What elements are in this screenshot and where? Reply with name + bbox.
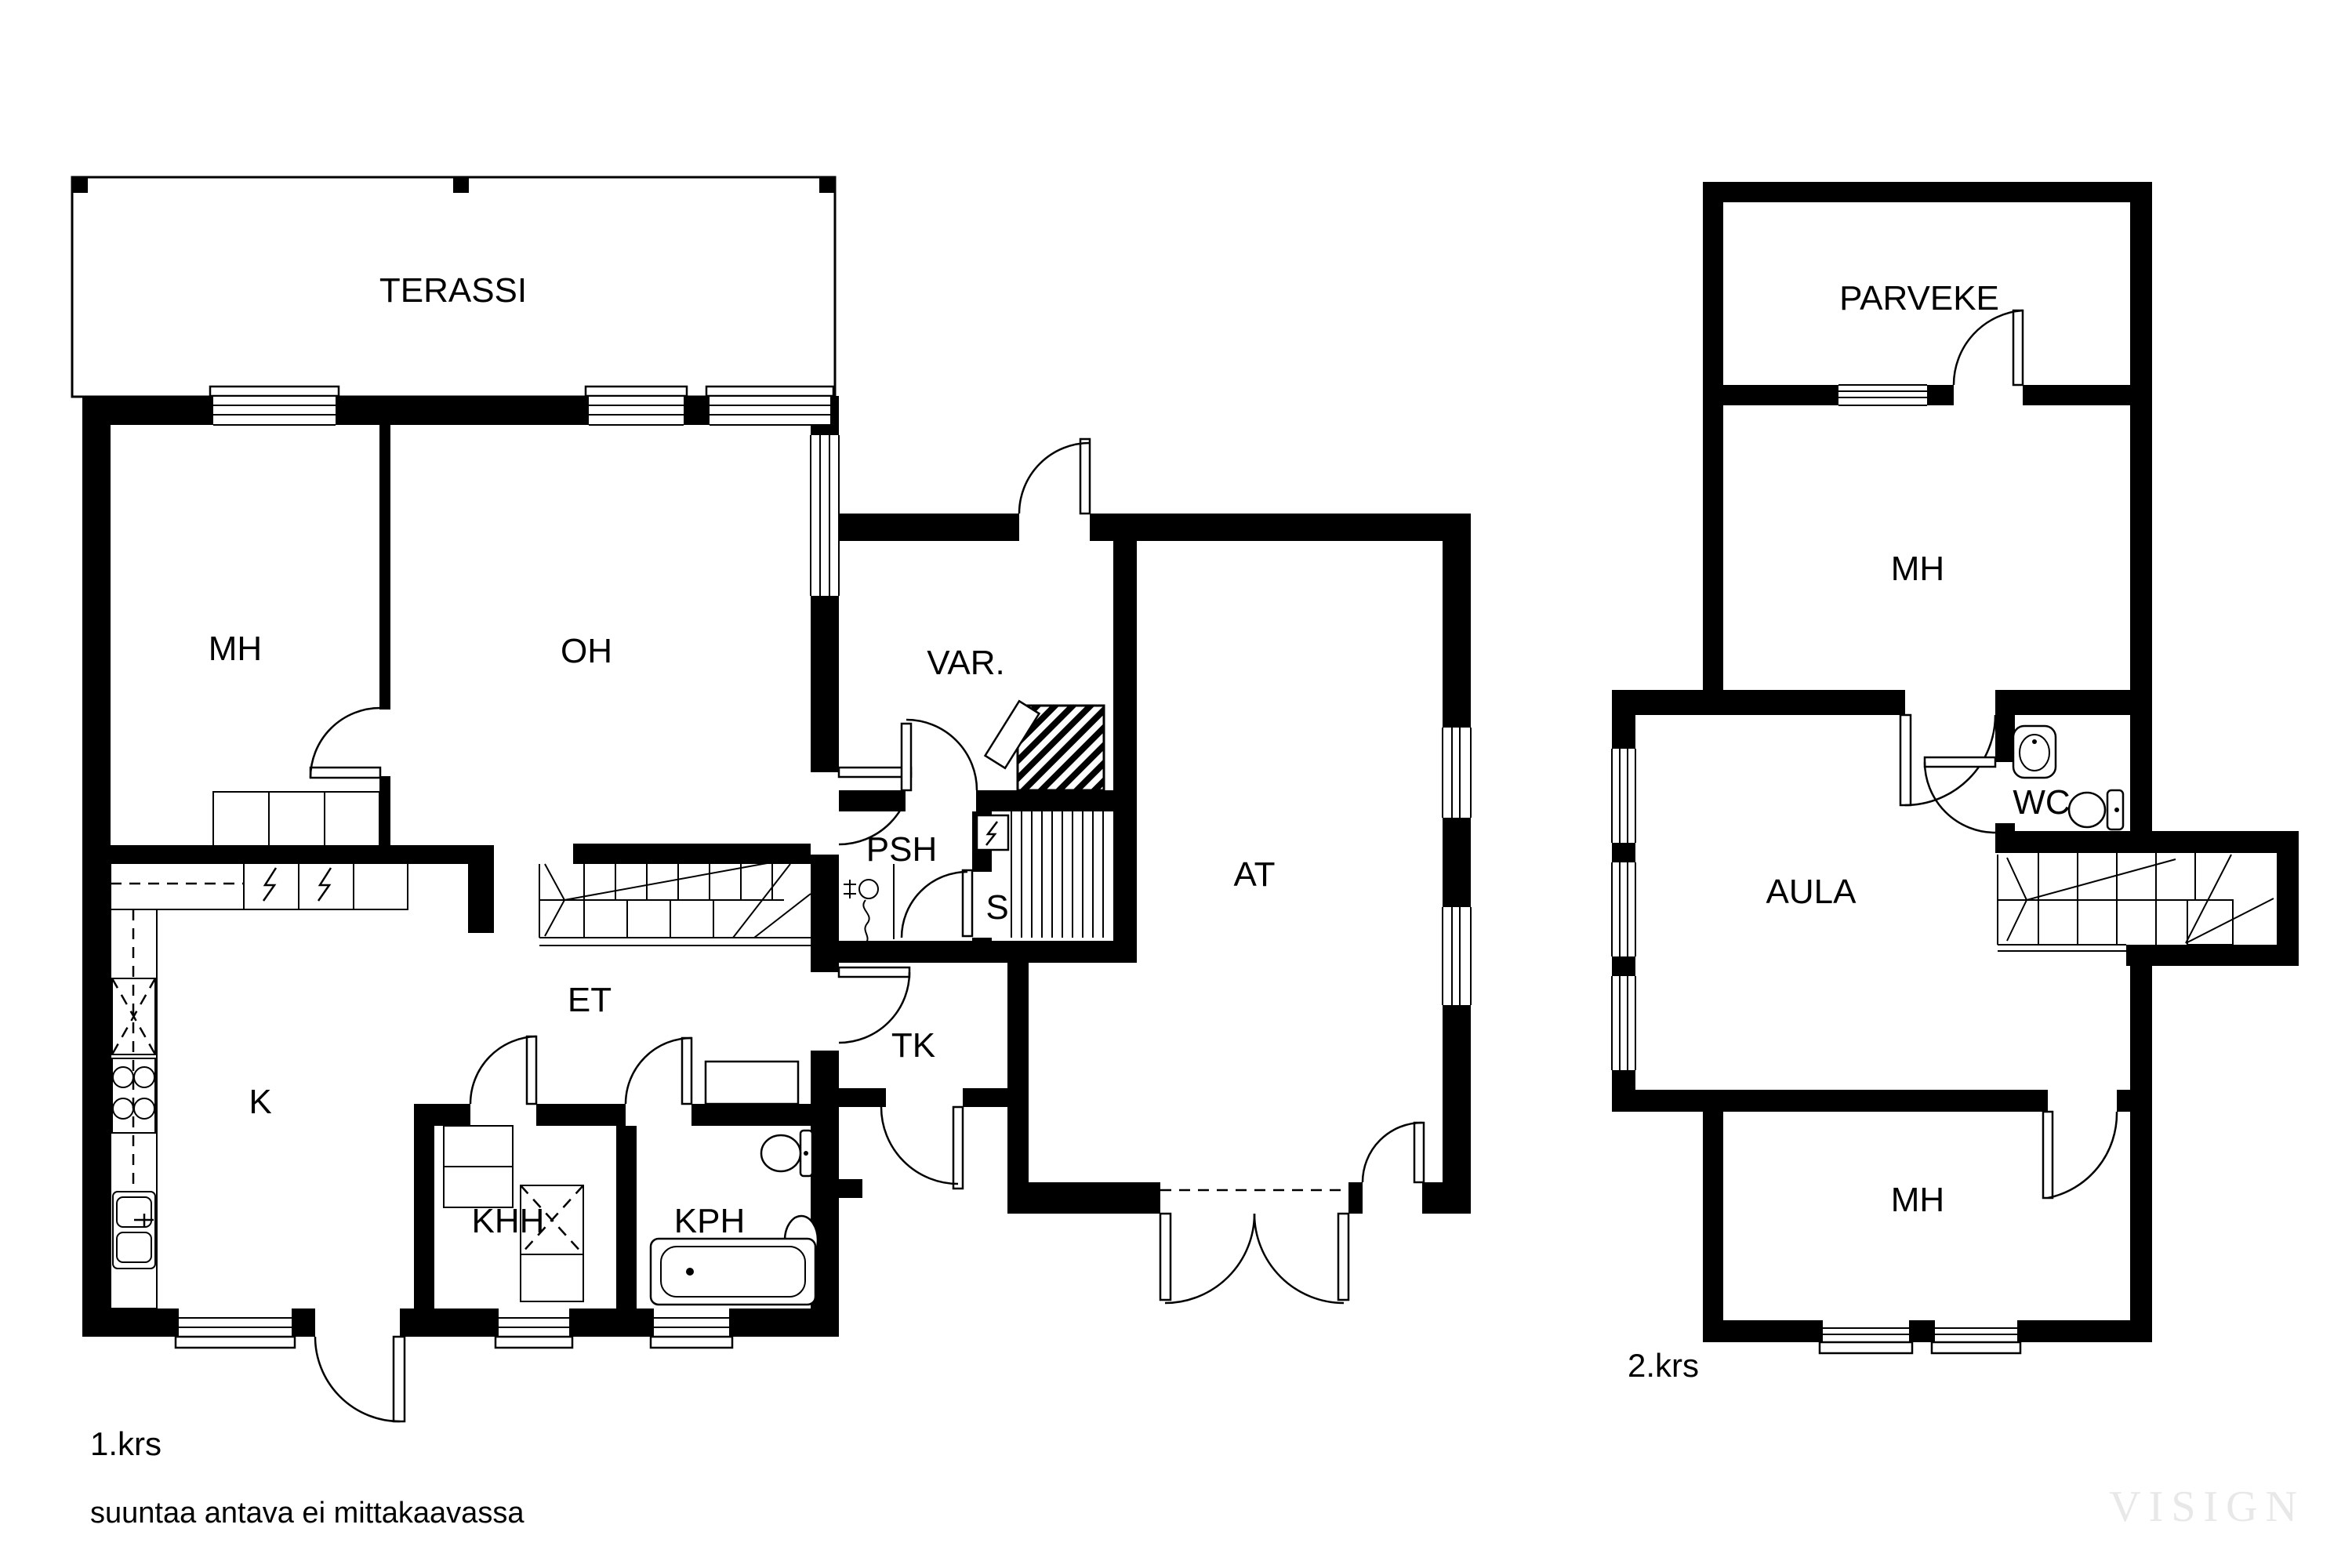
room-label-aula: AULA — [1766, 873, 1857, 911]
et-closet — [706, 1062, 798, 1104]
floor1-plan: TERASSI MH OH VAR. PSH S AT ET TK K KHH … — [72, 177, 1471, 1421]
toilet — [761, 1131, 812, 1176]
window — [651, 1308, 732, 1348]
windows-floor2 — [1612, 385, 2020, 1353]
floor1-caption: 1.krs — [90, 1425, 162, 1462]
floorplan-page: TERASSI MH OH VAR. PSH S AT ET TK K KHH … — [0, 0, 2352, 1568]
stairs-floor1 — [539, 861, 811, 946]
room-label-wc: WC — [2013, 783, 2070, 822]
room-label-parveke: PARVEKE — [1839, 279, 1999, 318]
window — [1820, 1320, 1912, 1353]
lightning-icon — [263, 868, 276, 901]
door-wc — [1925, 757, 2015, 833]
bathtub — [651, 1239, 815, 1305]
room-label-mh2-upper: MH — [1891, 550, 1944, 588]
room-label-mh2-lower: MH — [1891, 1181, 1944, 1219]
window — [1612, 749, 1635, 843]
electrical-panel — [111, 858, 408, 909]
room-label-terassi: TERASSI — [379, 271, 527, 310]
terrace-post — [453, 177, 469, 193]
door-aula-mh-lower — [2043, 1090, 2117, 1198]
toilet — [2069, 790, 2123, 829]
door-mh — [310, 708, 380, 778]
door-khh — [470, 1036, 536, 1126]
door-var-psh — [902, 720, 977, 811]
window — [1932, 1320, 2020, 1353]
door-balcony — [1954, 310, 2023, 405]
window — [176, 1308, 295, 1348]
door-tk-exit — [881, 1088, 963, 1189]
terrace-post — [819, 177, 835, 193]
window — [706, 387, 833, 425]
room-label-at: AT — [1234, 855, 1276, 894]
room-label-mh1: MH — [209, 630, 262, 668]
room-label-var: VAR. — [927, 644, 1004, 682]
window — [495, 1308, 572, 1348]
door-var-exterior — [1019, 439, 1090, 541]
watermark: VISIGN — [2109, 1483, 2305, 1531]
wc-sink — [2013, 726, 2056, 778]
window — [210, 387, 339, 425]
room-label-oh: OH — [561, 632, 612, 670]
sauna-heater — [977, 815, 1008, 850]
room-label-tk: TK — [891, 1026, 935, 1065]
floorplan-drawing: TERASSI MH OH VAR. PSH S AT ET TK K KHH … — [0, 0, 2352, 1568]
room-label-khh: KHH — [472, 1202, 545, 1240]
room-label-k: K — [249, 1083, 271, 1121]
kitchen-fixtures — [111, 909, 157, 1308]
room-label-kph: KPH — [674, 1202, 745, 1240]
disclaimer-text: suuntaa antava ei mittakaavassa — [90, 1497, 524, 1530]
window — [1838, 385, 1927, 405]
window — [1612, 976, 1635, 1070]
stairs-floor2 — [1998, 853, 2274, 951]
chimney-hatch — [985, 701, 1104, 790]
kitchen-sink — [113, 1192, 155, 1269]
lightning-icon — [318, 868, 331, 901]
shower — [844, 864, 894, 944]
floor2-plan: PARVEKE MH WC AULA MH — [1612, 182, 2299, 1353]
window — [1443, 728, 1471, 818]
door-at-side — [1363, 1123, 1424, 1214]
room-label-et: ET — [568, 981, 612, 1019]
door-kph — [626, 1038, 691, 1126]
room-label-psh: PSH — [866, 830, 937, 869]
garage-door — [1160, 1182, 1348, 1303]
window — [811, 435, 839, 596]
door-sauna — [902, 870, 992, 938]
terrace-post — [72, 177, 88, 193]
door-aula-mh-upper — [1900, 690, 1995, 805]
floor2-caption: 2.krs — [1628, 1347, 1699, 1384]
window — [1443, 907, 1471, 1005]
window — [1612, 862, 1635, 956]
door-entrance-k — [315, 1308, 405, 1421]
wardrobes-mh — [213, 792, 379, 847]
room-label-s: S — [985, 888, 1008, 927]
window — [586, 387, 687, 425]
